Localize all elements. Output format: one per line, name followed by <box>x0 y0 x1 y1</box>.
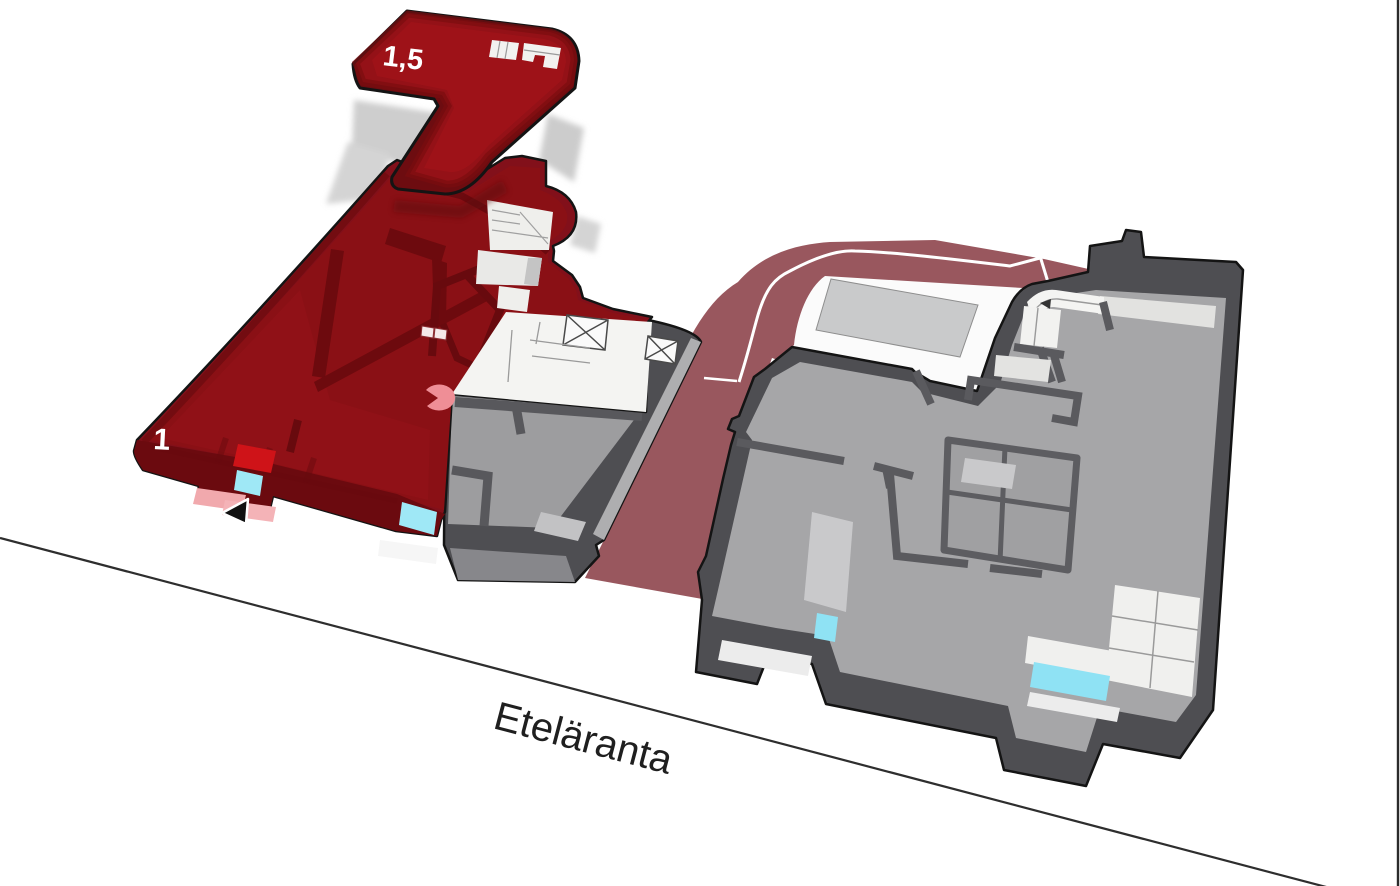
svg-text:1: 1 <box>153 423 171 457</box>
svg-text:1,5: 1,5 <box>381 40 425 77</box>
